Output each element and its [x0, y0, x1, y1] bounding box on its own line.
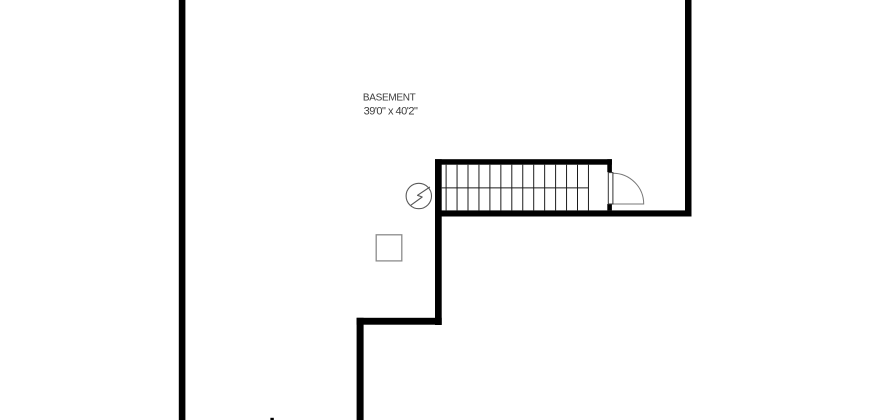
svg-text:BASEMENT: BASEMENT: [363, 93, 416, 104]
svg-text:39'0" x 40'2": 39'0" x 40'2": [364, 106, 418, 118]
